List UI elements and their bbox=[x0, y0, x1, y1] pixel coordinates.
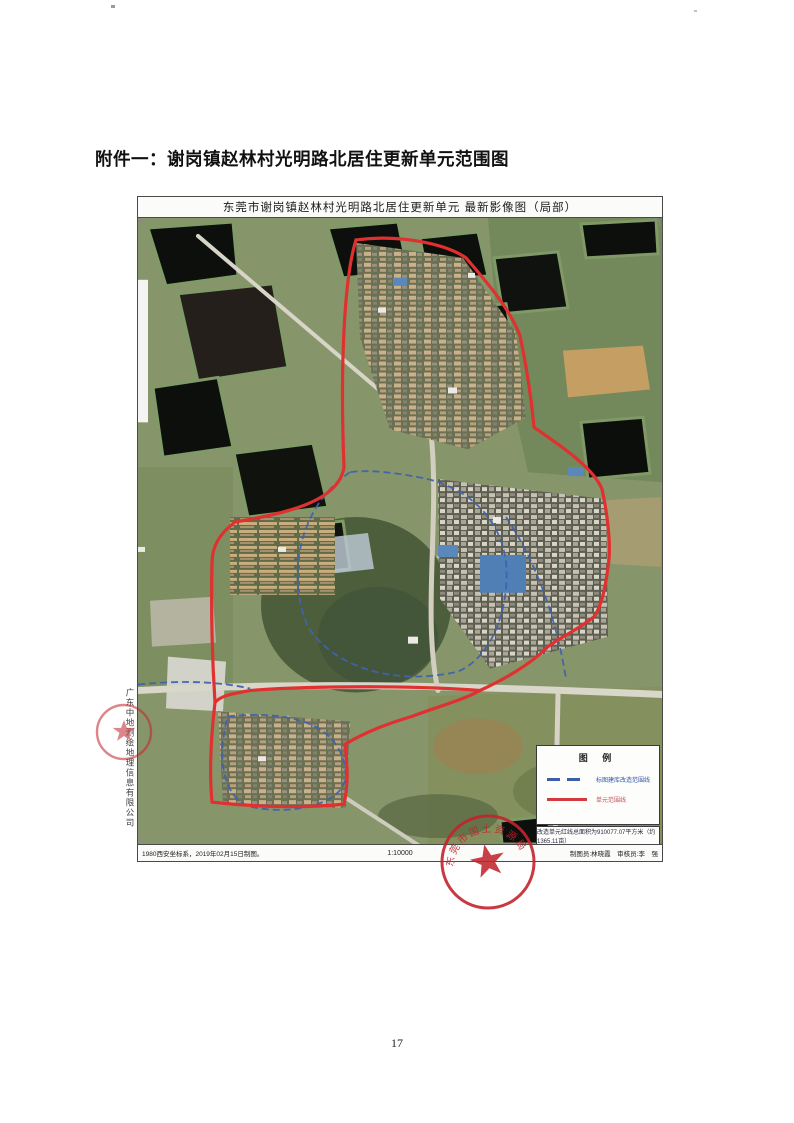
attachment-title: 附件一：谢岗镇赵林村光明路北居住更新单元范围图 bbox=[95, 146, 695, 171]
map-credits: 制图员:林晓霞 审核员:李 强 bbox=[570, 848, 658, 858]
map-figure: 东莞市谢岗镇赵林村光明路北居住更新单元 最新影像图（局部） bbox=[137, 196, 663, 862]
page-number: 17 bbox=[0, 1036, 794, 1051]
legend-title: 图 例 bbox=[537, 751, 659, 764]
legend: 图 例 标图建库改造范围线 单元范围线 bbox=[536, 745, 660, 825]
legend-item-unit-line: 单元范围线 bbox=[547, 795, 659, 804]
legend-item-label: 单元范围线 bbox=[596, 795, 626, 804]
corner-mark bbox=[140, 836, 146, 842]
area-note: 改造单元红线总面积为910077.07平方米（约1365.11亩） bbox=[536, 826, 660, 844]
corner-mark bbox=[140, 220, 146, 226]
official-red-seal: 东莞市国土资源局 bbox=[436, 810, 540, 914]
map-footer: 1980西安坐标系，2019年02月15日制图。 1:10000 制图员:林晓霞… bbox=[138, 844, 662, 861]
dashed-line-sample bbox=[547, 778, 587, 781]
map-title: 东莞市谢岗镇赵林村光明路北居住更新单元 最新影像图（局部） bbox=[138, 197, 662, 218]
legend-item-label: 标图建库改造范围线 bbox=[596, 775, 650, 784]
corner-mark bbox=[654, 220, 660, 226]
small-red-seal bbox=[92, 700, 156, 764]
legend-item-mapping-line: 标图建库改造范围线 bbox=[547, 775, 659, 784]
scan-speck bbox=[694, 10, 697, 12]
scan-speck bbox=[111, 5, 115, 8]
solid-line-sample bbox=[547, 798, 587, 801]
satellite-map: 图 例 标图建库改造范围线 单元范围线 改造单元红线总面积为910077.07平… bbox=[138, 218, 662, 844]
